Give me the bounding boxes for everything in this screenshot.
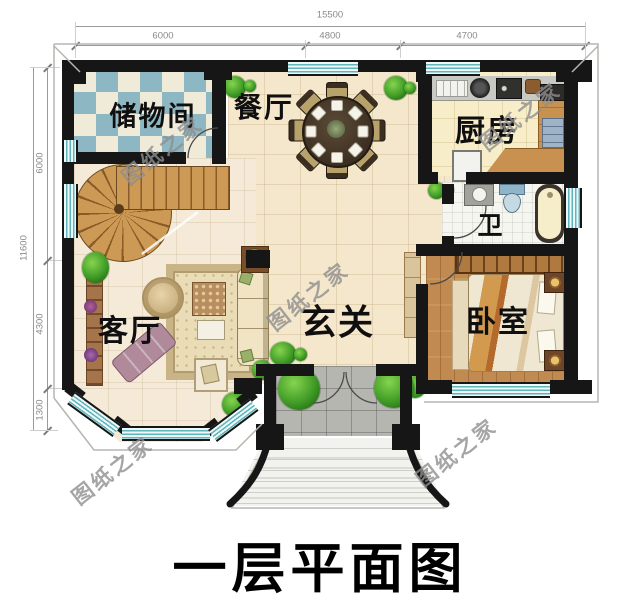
- wall-left: [62, 238, 74, 390]
- plate: [306, 126, 317, 138]
- room-label-bath: 卫: [477, 206, 504, 242]
- wall-right: [564, 60, 578, 188]
- potted-plant: [270, 342, 296, 366]
- footstool-cushion: [200, 364, 219, 385]
- wall-kitchen-left: [418, 60, 432, 184]
- dim-extension: [49, 388, 62, 389]
- dish-rack: [436, 80, 468, 97]
- wall-bedroom-top: [416, 244, 578, 256]
- wall-left: [62, 60, 74, 140]
- dim-left-seg-2: 4300: [35, 313, 46, 334]
- wall-storage-bottom: [216, 152, 226, 164]
- dim-top-seg-2: 4800: [319, 31, 340, 42]
- window-bath-right: [564, 188, 582, 228]
- dim-extension: [30, 430, 58, 431]
- window-kitchen-top: [426, 60, 480, 76]
- coffee-table: [192, 282, 226, 316]
- window-storage-left: [62, 140, 78, 162]
- wall-top: [62, 60, 288, 72]
- dim-top-seg-1: 6000: [152, 31, 173, 42]
- wall-foyer-bottom: [376, 364, 420, 376]
- stove: [496, 78, 522, 99]
- wall-left: [62, 162, 74, 184]
- porch-wall-left: [264, 374, 276, 428]
- room-label-dining: 餐厅: [234, 86, 294, 126]
- window-stair-left: [62, 184, 78, 238]
- wall-bath-left: [442, 184, 454, 204]
- flower-pot: [84, 348, 98, 362]
- dim-left-total: 11600: [19, 235, 30, 261]
- porch-column-foot: [392, 424, 420, 450]
- wall-pillar: [246, 250, 270, 268]
- kitchen-sink: [470, 78, 490, 98]
- dining-set: [288, 82, 384, 178]
- dim-extension: [49, 260, 62, 261]
- nightstand: [544, 272, 566, 293]
- plate: [358, 126, 369, 138]
- porch-wall-right: [400, 374, 412, 428]
- wall-kitchen-bottom: [466, 172, 578, 184]
- wall-kitchen-bottom: [418, 172, 438, 184]
- potted-plant: [294, 348, 307, 361]
- plate: [331, 100, 343, 111]
- serving-tray: [197, 320, 225, 340]
- dim-top-seg-3: 4700: [456, 31, 477, 42]
- dim-top-total: 15500: [317, 10, 343, 21]
- dim-top-inner-line: [75, 45, 585, 46]
- dim-extension: [30, 67, 60, 68]
- porch-column-foot: [256, 424, 284, 450]
- dim-extension: [305, 40, 306, 58]
- potted-plant: [82, 252, 109, 283]
- page-title: 一层平面图: [0, 524, 640, 603]
- bathtub-drain: [547, 192, 553, 198]
- watermark: 图纸之家: [65, 429, 159, 512]
- table-centerpiece: [327, 120, 345, 138]
- dim-left-seg-3: 1300: [35, 399, 46, 420]
- plate: [331, 152, 343, 163]
- window-dining-top: [288, 60, 358, 76]
- flower-pot: [84, 300, 97, 313]
- dim-top-outer-line: [75, 26, 585, 27]
- dishwasher: [542, 118, 564, 148]
- floor-plan-canvas: 15500 6000 4800 4700 11600 6000 4300 130…: [0, 0, 640, 610]
- potted-plant: [404, 82, 416, 94]
- dim-left-outer-line: [33, 67, 34, 430]
- wall-storage-right: [212, 60, 226, 164]
- window-bedroom-bottom: [452, 382, 550, 398]
- dim-extension: [75, 22, 76, 58]
- nightstand: [544, 350, 566, 371]
- room-label-bedroom: 卧室: [466, 297, 530, 341]
- watermark: 图纸之家: [409, 411, 503, 494]
- dim-extension: [585, 22, 586, 58]
- dim-left-seg-1: 6000: [35, 152, 46, 173]
- wall-bedroom-bottom: [416, 380, 452, 394]
- wall-bedroom-bottom: [550, 380, 592, 394]
- bathroom-sink: [472, 187, 487, 202]
- dim-extension: [400, 40, 401, 58]
- room-label-living: 客厅: [98, 306, 162, 350]
- staircase-newel-post: [114, 204, 124, 214]
- dim-left-inner-line: [47, 67, 48, 430]
